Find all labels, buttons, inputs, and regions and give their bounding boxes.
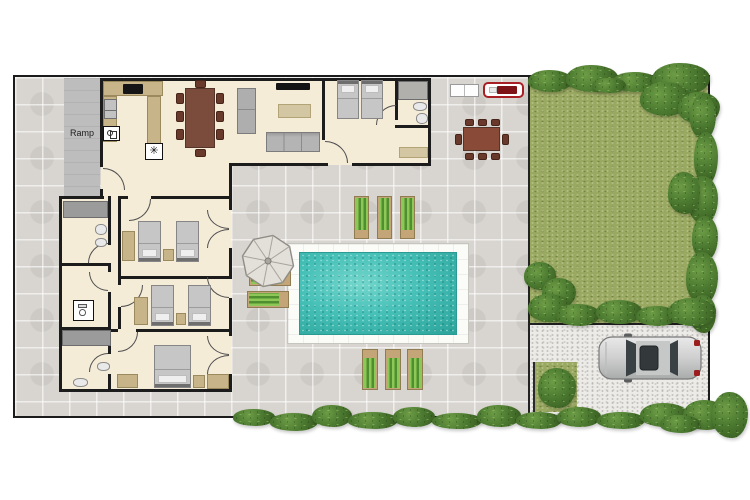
nightstand xyxy=(176,313,186,325)
wall xyxy=(59,196,104,199)
bathroom-sink xyxy=(413,102,427,111)
bush xyxy=(712,392,748,438)
coffee-table xyxy=(278,104,311,118)
wall xyxy=(136,329,232,332)
wall xyxy=(322,78,325,140)
wardrobe xyxy=(134,297,148,325)
bush xyxy=(668,172,700,214)
sun-lounger xyxy=(354,196,369,239)
outdoor-chair xyxy=(478,119,487,126)
wall xyxy=(108,196,111,245)
dining-chair xyxy=(195,149,206,157)
bathroom-sink xyxy=(95,238,107,247)
swimming-pool xyxy=(299,252,457,335)
wall xyxy=(118,196,128,199)
freezer-icon: ✳ xyxy=(145,143,163,160)
dining-chair xyxy=(176,93,184,104)
wall xyxy=(100,189,103,196)
sun-lounger xyxy=(407,349,423,390)
twin-bed xyxy=(151,285,174,326)
toilet xyxy=(95,224,107,235)
dining-chair xyxy=(176,129,184,140)
stove-icon xyxy=(103,126,120,141)
dining-chair xyxy=(216,111,224,122)
wall xyxy=(151,196,232,199)
dining-table xyxy=(185,88,215,148)
bbq-grate xyxy=(497,86,517,94)
toilet xyxy=(416,113,428,124)
wall xyxy=(232,163,328,166)
pillow xyxy=(192,313,207,321)
lounger-cushion xyxy=(402,198,413,230)
wall xyxy=(108,265,111,272)
tv xyxy=(276,83,310,90)
lounger-cushion xyxy=(409,358,421,388)
wall xyxy=(59,196,62,392)
pillow xyxy=(155,313,170,321)
outdoor-chair xyxy=(491,153,500,160)
pillow xyxy=(365,85,379,93)
shower-tray xyxy=(398,81,428,100)
bbq-side-shelf xyxy=(489,87,497,93)
ramp-label: Ramp xyxy=(62,127,102,139)
lounger-cushion xyxy=(387,358,399,388)
wall xyxy=(108,374,111,389)
wardrobe xyxy=(122,231,135,261)
wall xyxy=(59,389,232,392)
pillow xyxy=(341,85,355,93)
wall xyxy=(229,163,232,210)
dining-chair xyxy=(216,93,224,104)
lounger-cushion xyxy=(379,198,390,230)
twin-bed xyxy=(337,80,359,119)
kitchen-counter-right xyxy=(147,96,161,144)
floor-plan-canvas: Ramp ✳ xyxy=(0,0,750,500)
bathroom-sink xyxy=(97,362,110,371)
lounger-cushion xyxy=(356,198,367,230)
outdoor-chair xyxy=(502,134,509,145)
wall xyxy=(229,248,232,276)
bush xyxy=(668,298,716,326)
bush xyxy=(393,407,435,427)
outdoor-dining-table xyxy=(463,127,500,151)
shower-tray xyxy=(62,330,111,346)
garden-boundary-line xyxy=(528,77,530,416)
sun-lounger xyxy=(385,349,401,390)
twin-bed xyxy=(361,80,383,119)
parked-car xyxy=(598,332,702,384)
bush xyxy=(597,412,645,429)
pillow xyxy=(142,249,157,257)
bush xyxy=(270,413,318,431)
bush xyxy=(516,412,562,429)
lounger-cushion xyxy=(364,358,376,388)
twin-bed xyxy=(176,221,199,262)
bbq-grill xyxy=(483,82,524,98)
nightstand xyxy=(163,249,174,261)
sofa-vertical xyxy=(237,88,256,134)
shower-tray xyxy=(63,201,108,218)
dining-chair xyxy=(195,80,206,88)
sun-lounger xyxy=(400,196,415,239)
bedroom-rug xyxy=(399,147,428,158)
dining-chair xyxy=(216,129,224,140)
outdoor-chair xyxy=(465,153,474,160)
outdoor-chair xyxy=(455,134,462,145)
bush xyxy=(477,405,521,427)
kitchen-sink xyxy=(104,99,117,119)
wall xyxy=(395,125,431,128)
garden-bench-white xyxy=(450,84,479,97)
cooktop xyxy=(123,84,143,94)
outdoor-chair xyxy=(465,119,474,126)
toilet-bowl xyxy=(79,309,86,316)
sun-lounger xyxy=(247,291,289,308)
sun-lounger xyxy=(377,196,392,239)
dining-chair xyxy=(176,111,184,122)
wall xyxy=(59,263,111,266)
bush xyxy=(432,413,482,429)
lounger-cushion xyxy=(249,293,279,306)
sun-lounger xyxy=(362,349,378,390)
bush xyxy=(556,304,600,326)
nightstand xyxy=(193,375,205,388)
bush xyxy=(233,409,275,426)
twin-bed xyxy=(188,285,211,326)
wc-toilet-icon xyxy=(73,300,94,321)
sofa-horizontal xyxy=(266,132,320,152)
outdoor-chair xyxy=(478,153,487,160)
bush xyxy=(557,407,601,427)
bush xyxy=(596,300,642,324)
pillow xyxy=(158,375,187,383)
wall xyxy=(428,78,431,166)
twin-bed xyxy=(138,221,161,262)
wardrobe xyxy=(207,374,229,389)
wall xyxy=(352,163,431,166)
outdoor-chair xyxy=(491,119,500,126)
pillow xyxy=(180,249,195,257)
wardrobe xyxy=(117,374,138,388)
bush xyxy=(348,412,398,429)
bush xyxy=(592,78,626,93)
patio-umbrella xyxy=(240,233,296,289)
wall xyxy=(118,307,121,329)
bush xyxy=(312,405,352,427)
double-bed xyxy=(154,345,191,388)
toilet-tank xyxy=(78,304,87,308)
bush xyxy=(660,415,700,433)
bush xyxy=(538,368,576,408)
wall xyxy=(118,196,121,285)
toilet xyxy=(73,378,88,387)
